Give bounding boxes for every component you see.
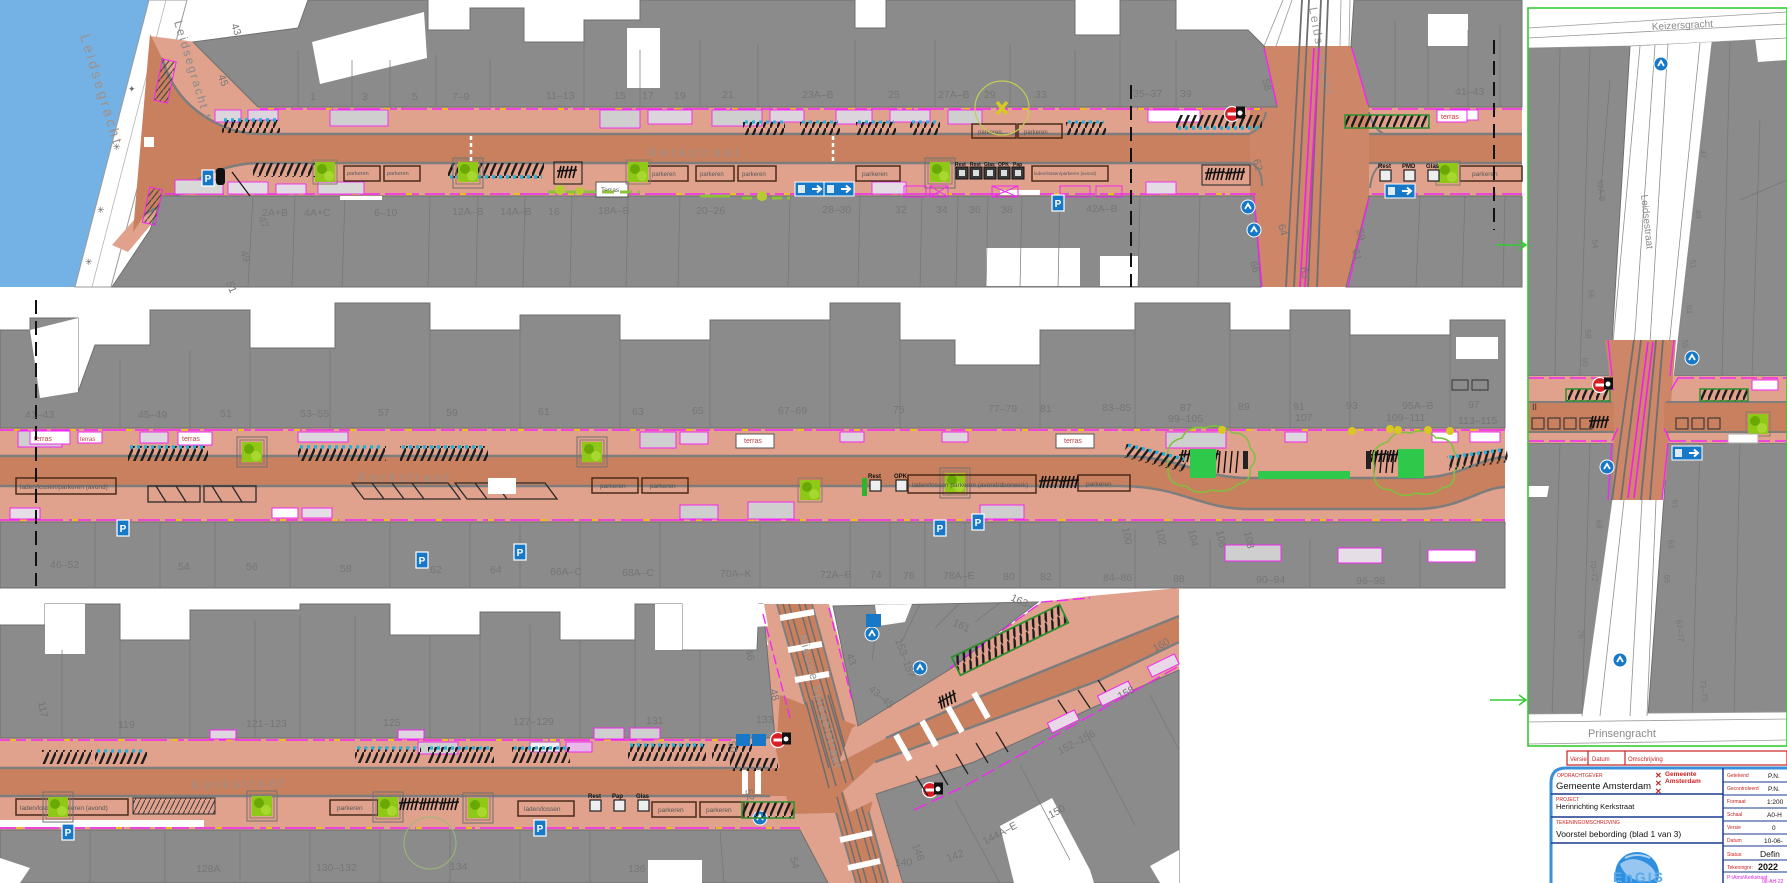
svg-text:A0-H: A0-H: [1767, 812, 1782, 819]
svg-text:15: 15: [614, 90, 626, 102]
svg-text:107: 107: [1295, 412, 1313, 424]
svg-text:95A–B: 95A–B: [1402, 400, 1434, 412]
svg-text:96–98: 96–98: [1356, 575, 1385, 587]
svg-text:✳: ✳: [85, 257, 93, 267]
svg-text:Pap: Pap: [1013, 162, 1022, 168]
svg-text:Amsterdam: Amsterdam: [1665, 778, 1701, 785]
svg-text:133: 133: [756, 714, 774, 726]
svg-text:Herinrichting Kerkstraat: Herinrichting Kerkstraat: [1556, 802, 1635, 811]
svg-text:parkeren: parkeren: [600, 483, 626, 490]
svg-text:97: 97: [1468, 399, 1480, 411]
svg-text:32: 32: [895, 204, 907, 216]
svg-text:62: 62: [430, 564, 442, 576]
svg-text:Schaal: Schaal: [1727, 812, 1742, 818]
svg-text:61: 61: [1670, 499, 1680, 509]
svg-text:57: 57: [378, 407, 390, 419]
svg-text:58: 58: [1583, 329, 1593, 339]
svg-text:parkeren: parkeren: [387, 171, 409, 177]
svg-text:Rest: Rest: [955, 162, 966, 168]
svg-text:58: 58: [340, 563, 352, 575]
svg-text:55: 55: [1680, 339, 1690, 349]
svg-text:Omschrijving: Omschrijving: [1628, 757, 1663, 763]
svg-text:Defin: Defin: [1760, 849, 1780, 859]
svg-text:parkeren: parkeren: [652, 172, 676, 178]
svg-text:14A–B: 14A–B: [500, 206, 532, 218]
svg-text:17: 17: [642, 90, 654, 102]
svg-text:75: 75: [893, 404, 905, 416]
svg-text:113–115: 113–115: [1458, 415, 1497, 427]
svg-text:119: 119: [118, 719, 135, 731]
svg-text:2A+B: 2A+B: [262, 207, 288, 219]
svg-text:7–9: 7–9: [452, 91, 470, 103]
svg-text:II: II: [1532, 402, 1537, 412]
svg-text:parkeren: parkeren: [706, 807, 732, 814]
svg-text:90–94: 90–94: [1256, 574, 1285, 586]
svg-text:terras: terras: [182, 436, 200, 443]
svg-text:Glas: Glas: [984, 162, 995, 168]
svg-text:125: 125: [383, 717, 401, 729]
svg-text:laden/lossen: laden/lossen: [524, 806, 561, 813]
svg-text:parkeren: parkeren: [1086, 481, 1112, 488]
svg-text:Pap: Pap: [612, 794, 623, 800]
svg-text:Status:: Status:: [1727, 852, 1743, 858]
svg-text:3: 3: [362, 91, 368, 103]
svg-text:Datum: Datum: [1727, 838, 1742, 844]
svg-text:0: 0: [1772, 825, 1776, 832]
svg-text:19: 19: [674, 90, 686, 102]
svg-text:laden/lossen parkeren (avond: laden/lossen parkeren (avond/doorwerk): [912, 482, 1028, 489]
svg-text:78A–E: 78A–E: [943, 570, 975, 582]
svg-text:41–43: 41–43: [25, 409, 54, 421]
svg-text:70A–K: 70A–K: [720, 568, 752, 580]
svg-text:1: 1: [310, 91, 316, 103]
svg-text:128A: 128A: [196, 863, 221, 875]
svg-text:61: 61: [538, 406, 550, 418]
svg-text:Getekend: Getekend: [1727, 773, 1749, 779]
svg-text:Tekeningnr:: Tekeningnr:: [1727, 865, 1753, 871]
svg-text:Versie: Versie: [1727, 825, 1741, 831]
svg-text:66A–C: 66A–C: [550, 566, 583, 578]
svg-text:P.N.: P.N.: [1768, 773, 1780, 780]
svg-text:20–26: 20–26: [696, 205, 725, 217]
svg-text:68A–C: 68A–C: [622, 567, 655, 579]
svg-text:Voorstel bebording (blad 1 van: Voorstel bebording (blad 1 van 3): [1556, 829, 1681, 839]
svg-text:Glas: Glas: [636, 794, 650, 800]
svg-text:2022: 2022: [1758, 862, 1778, 872]
svg-text:36: 36: [969, 204, 981, 216]
svg-text:parkeren: parkeren: [1024, 130, 1048, 136]
svg-text:laden/lossen/parkeren (avond): laden/lossen/parkeren (avond): [1034, 171, 1097, 176]
svg-text:terras: terras: [80, 437, 95, 443]
svg-text:✦: ✦: [128, 84, 136, 94]
svg-text:64: 64: [490, 564, 502, 576]
svg-text:29: 29: [984, 89, 996, 101]
svg-text:parkeren: parkeren: [742, 172, 766, 178]
svg-text:84–86: 84–86: [1103, 572, 1132, 584]
svg-text:45–49: 45–49: [138, 409, 167, 421]
svg-text:TEKENINGOMSCHRIJVING: TEKENINGOMSCHRIJVING: [1556, 820, 1620, 826]
svg-text:Rest: Rest: [588, 794, 601, 800]
svg-text:Kerkstraat: Kerkstraat: [648, 144, 742, 160]
svg-text:56: 56: [246, 561, 258, 573]
svg-text:77–79: 77–79: [988, 403, 1017, 415]
svg-text:Versie: Versie: [1570, 757, 1587, 763]
svg-text:35–37: 35–37: [1133, 88, 1162, 100]
svg-text:Formaat: Formaat: [1727, 799, 1746, 805]
svg-text:67–69: 67–69: [778, 405, 807, 417]
svg-text:89: 89: [1238, 401, 1250, 413]
svg-text:76: 76: [903, 570, 915, 582]
svg-text:✳: ✳: [97, 205, 105, 215]
svg-text:109–111: 109–111: [1386, 412, 1425, 424]
svg-text:12A–B: 12A–B: [452, 206, 484, 218]
svg-text:76: 76: [1576, 629, 1586, 639]
svg-text:83–85: 83–85: [1102, 402, 1131, 414]
svg-text:Kerkstraat: Kerkstraat: [192, 774, 286, 793]
svg-text:terras: terras: [1441, 114, 1459, 121]
svg-text:41–43: 41–43: [1455, 86, 1484, 98]
svg-text:65: 65: [692, 405, 704, 417]
svg-text:Prinsengracht: Prinsengracht: [1588, 728, 1656, 740]
svg-text:23A–B: 23A–B: [802, 89, 834, 101]
svg-text:laden/lossen/parkeren (avond): laden/lossen/parkeren (avond): [20, 484, 108, 491]
svg-text:18A–B: 18A–B: [598, 205, 630, 217]
svg-text:80: 80: [1003, 571, 1015, 583]
svg-text:81: 81: [1040, 403, 1052, 415]
svg-text:4A+C: 4A+C: [304, 207, 331, 219]
svg-text:Rest: Rest: [868, 474, 881, 480]
svg-text:16: 16: [548, 206, 560, 218]
svg-text:parkeren: parkeren: [700, 172, 724, 178]
svg-text:127–129: 127–129: [513, 716, 554, 728]
svg-text:88: 88: [1173, 573, 1185, 585]
svg-text:10-06-: 10-06-: [1764, 838, 1783, 845]
svg-text:46–52: 46–52: [50, 559, 79, 571]
svg-text:parkeren: parkeren: [862, 171, 888, 178]
svg-text:EnGIS: EnGIS: [1613, 869, 1665, 883]
svg-text:5: 5: [412, 91, 418, 103]
svg-text:74: 74: [870, 569, 882, 581]
svg-text:42A–B: 42A–B: [1086, 203, 1118, 215]
svg-text:rooster rooster: rooster rooster: [1452, 374, 1485, 380]
svg-text:99–105: 99–105: [1168, 413, 1203, 425]
svg-text:82: 82: [1040, 571, 1052, 583]
svg-text:Kerkstraat: Kerkstraat: [358, 469, 452, 485]
svg-text:parkeren: parkeren: [658, 807, 684, 814]
svg-text:54: 54: [1590, 239, 1600, 249]
svg-text:54: 54: [178, 561, 190, 573]
svg-text:parkeren: parkeren: [650, 483, 676, 490]
svg-text:terras: terras: [1064, 438, 1082, 445]
svg-text:63: 63: [1666, 539, 1676, 549]
svg-text:28–30: 28–30: [822, 204, 851, 216]
svg-text:51: 51: [220, 408, 232, 420]
svg-text:60: 60: [1580, 357, 1590, 367]
svg-text:53–55: 53–55: [300, 408, 329, 420]
svg-text:parkeren: parkeren: [337, 805, 363, 812]
svg-text:39: 39: [1180, 88, 1192, 100]
svg-text:Glas: Glas: [1426, 164, 1440, 170]
svg-text:59: 59: [446, 407, 458, 419]
svg-text:140: 140: [895, 856, 913, 869]
svg-text:terras: terras: [744, 438, 762, 445]
svg-text:33: 33: [1035, 89, 1047, 101]
svg-text:08-AH-22: 08-AH-22: [1762, 879, 1784, 883]
svg-text:56: 56: [1586, 289, 1596, 299]
svg-text:OPK: OPK: [894, 474, 908, 480]
svg-text:72A–B: 72A–B: [820, 569, 852, 581]
svg-text:63: 63: [632, 406, 644, 418]
svg-text:25: 25: [888, 89, 900, 101]
svg-text:1:200: 1:200: [1767, 799, 1784, 806]
svg-text:65: 65: [1662, 574, 1672, 584]
svg-text:Rest: Rest: [970, 162, 981, 168]
svg-text:131: 131: [646, 715, 664, 727]
svg-text:OPDRACHTGEVER: OPDRACHTGEVER: [1557, 773, 1603, 779]
svg-text:Datum: Datum: [1592, 757, 1610, 763]
svg-text:PMD: PMD: [1402, 164, 1416, 170]
svg-text:53: 53: [1684, 304, 1694, 314]
svg-text:P.N.: P.N.: [1768, 786, 1780, 793]
svg-text:21: 21: [722, 89, 734, 101]
svg-text:Rest: Rest: [1378, 164, 1391, 170]
svg-text:51: 51: [1688, 259, 1698, 269]
svg-text:68: 68: [1594, 519, 1604, 529]
svg-text:47: 47: [1698, 149, 1708, 159]
svg-text:134: 134: [450, 861, 468, 873]
svg-text:OPK: OPK: [998, 162, 1009, 168]
svg-text:27A–B: 27A–B: [938, 89, 970, 101]
svg-text:121–123: 121–123: [246, 718, 287, 730]
svg-text:93: 93: [1346, 400, 1358, 412]
svg-text:136: 136: [628, 863, 646, 875]
svg-text:6–10: 6–10: [374, 207, 398, 219]
svg-text:34: 34: [936, 204, 948, 216]
svg-text:38: 38: [1001, 204, 1013, 216]
svg-text:Gecontroleerd: Gecontroleerd: [1727, 786, 1759, 792]
svg-text:49: 49: [1693, 209, 1703, 219]
svg-text:130–132: 130–132: [316, 862, 357, 874]
svg-text:parkeren: parkeren: [347, 171, 369, 177]
svg-text:Gemeente Amsterdam: Gemeente Amsterdam: [1556, 781, 1651, 792]
svg-text:11–13: 11–13: [546, 90, 575, 102]
svg-text:Gemeente: Gemeente: [1665, 771, 1697, 778]
